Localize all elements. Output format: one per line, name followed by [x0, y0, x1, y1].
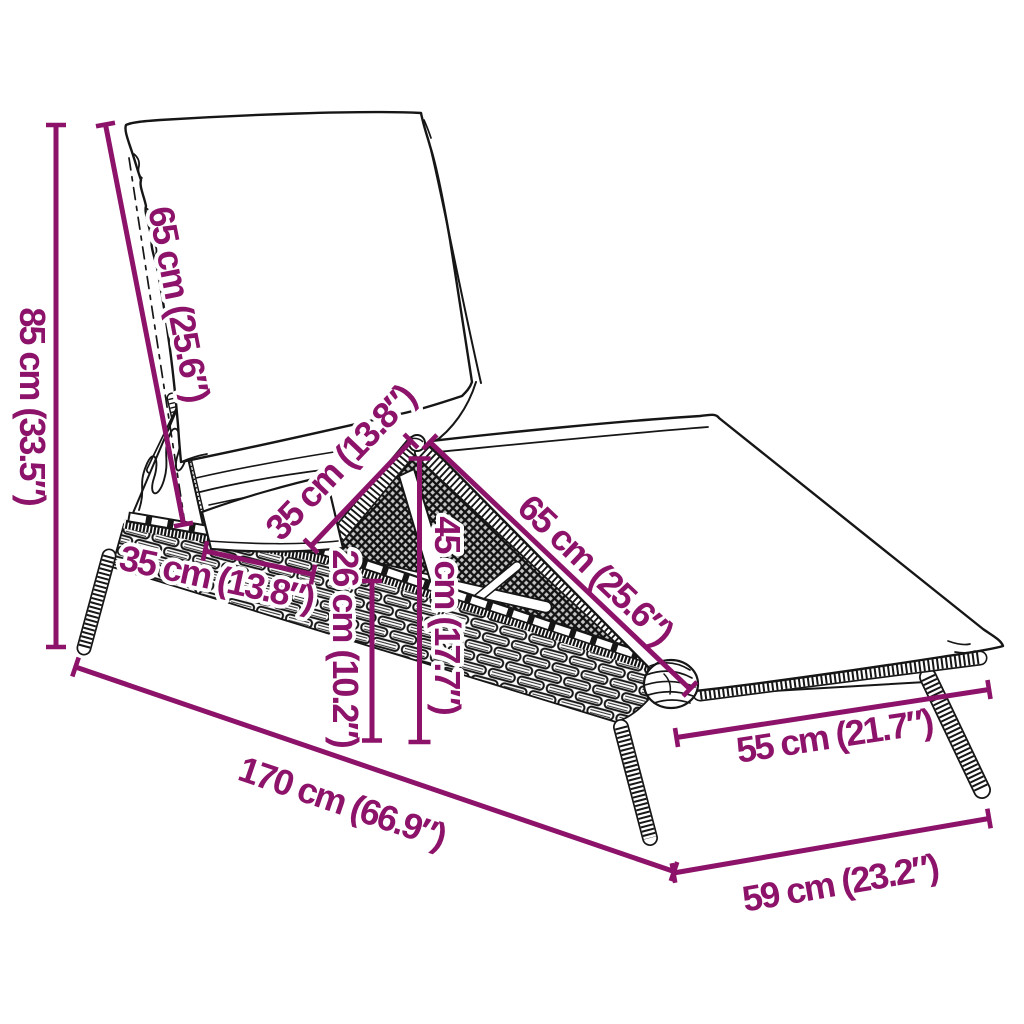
- svg-text:85 cm (33.5″): 85 cm (33.5″): [12, 307, 53, 505]
- svg-text:26 cm (10.2″): 26 cm (10.2″): [325, 549, 366, 747]
- svg-text:45 cm (17.7″): 45 cm (17.7″): [427, 516, 468, 714]
